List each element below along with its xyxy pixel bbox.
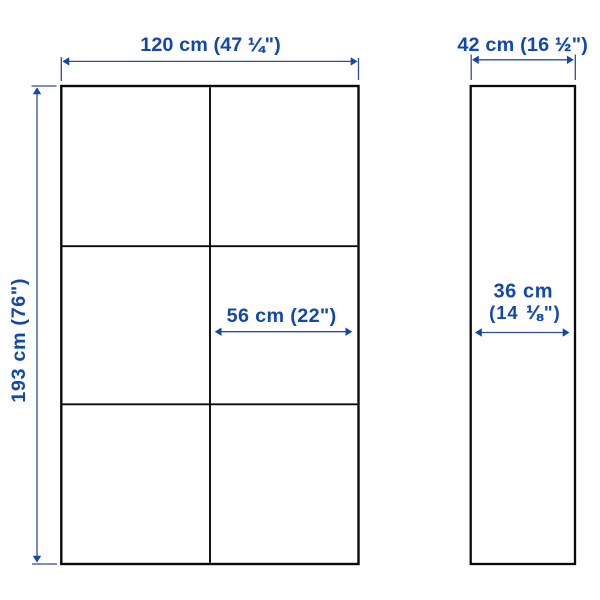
svg-text:36 cm: 36 cm xyxy=(493,281,553,303)
svg-text:42 cm (16 ½"): 42 cm (16 ½") xyxy=(457,34,588,56)
svg-text:120 cm (47 ¼"): 120 cm (47 ¼") xyxy=(140,34,281,56)
svg-text:56 cm (22"): 56 cm (22") xyxy=(227,305,337,327)
svg-text:193 cm (76"): 193 cm (76") xyxy=(8,278,30,403)
